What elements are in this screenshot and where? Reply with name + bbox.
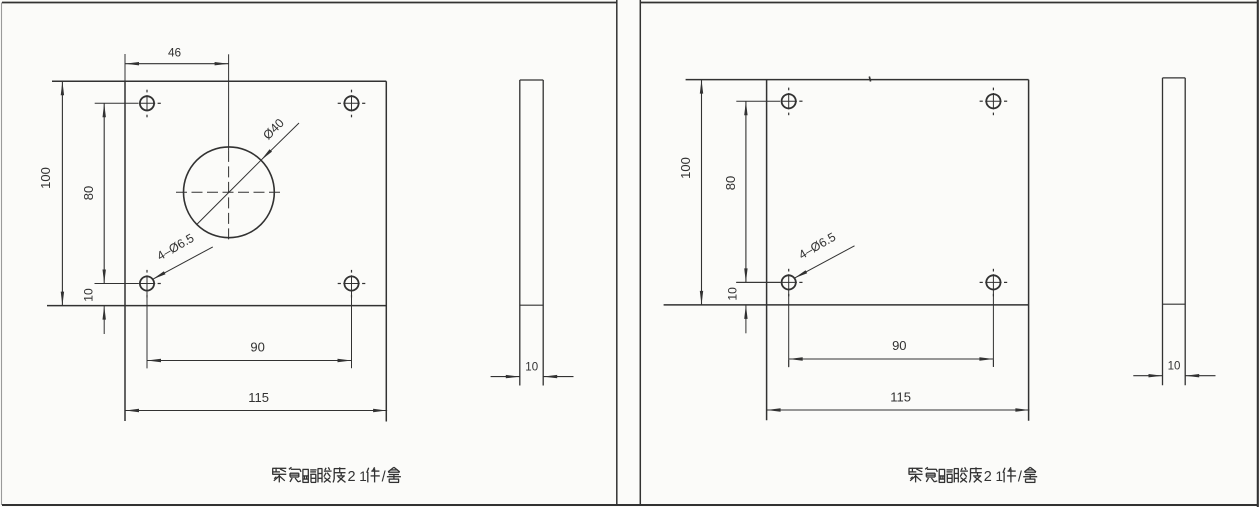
svg-text:100: 100: [38, 167, 53, 189]
svg-text:1: 1: [996, 469, 1004, 484]
svg-text:10: 10: [82, 288, 96, 302]
svg-text:2: 2: [984, 469, 992, 485]
svg-text:90: 90: [250, 340, 264, 355]
svg-text:2: 2: [347, 469, 355, 485]
svg-text:100: 100: [678, 157, 693, 179]
svg-text:80: 80: [723, 176, 738, 190]
svg-text:1: 1: [359, 469, 367, 484]
svg-text:90: 90: [892, 338, 906, 353]
svg-text:115: 115: [248, 390, 269, 405]
svg-text:10: 10: [1168, 361, 1181, 373]
svg-text:115: 115: [890, 390, 911, 405]
svg-text:46: 46: [168, 46, 182, 60]
svg-text:80: 80: [81, 186, 96, 200]
svg-text:10: 10: [525, 362, 538, 374]
svg-text:10: 10: [725, 287, 739, 301]
